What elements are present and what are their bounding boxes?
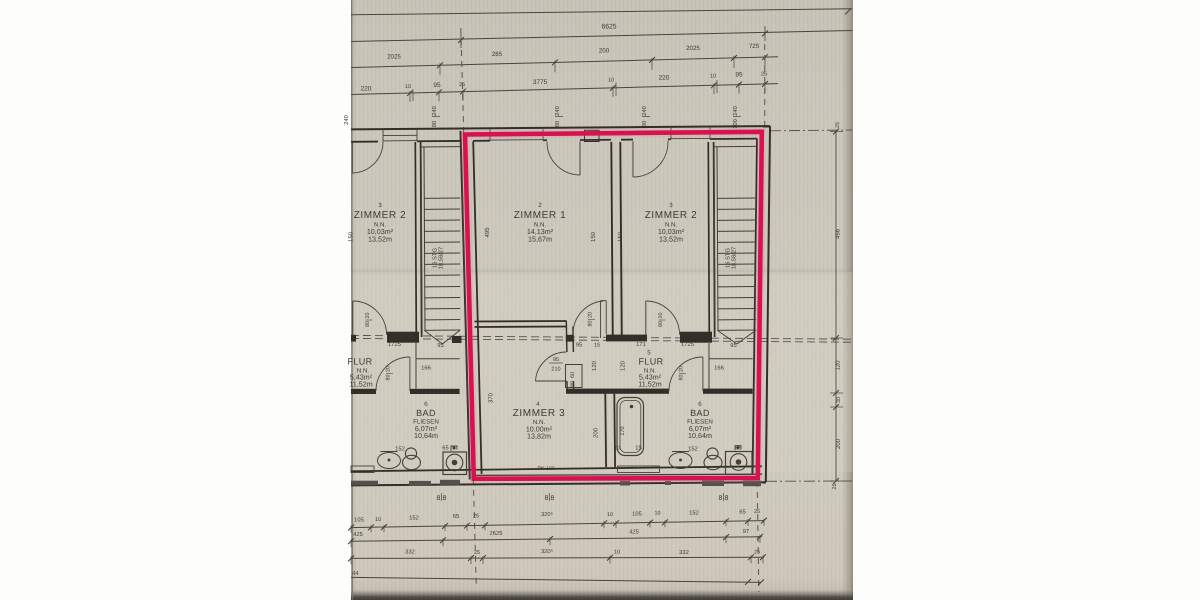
svg-text:16 STG: 16 STG [432, 248, 439, 268]
svg-text:20: 20 [588, 312, 594, 318]
svg-text:11,52m: 11,52m [349, 380, 372, 389]
svg-text:152: 152 [409, 515, 419, 522]
svg-text:10: 10 [614, 446, 620, 452]
svg-text:240: 240 [554, 106, 561, 116]
svg-text:8: 8 [725, 495, 729, 502]
svg-text:8: 8 [551, 495, 555, 502]
svg-text:80: 80 [570, 381, 576, 387]
svg-text:152: 152 [688, 446, 698, 453]
svg-text:166: 166 [714, 365, 724, 372]
svg-text:120: 120 [835, 360, 842, 371]
svg-text:8: 8 [437, 495, 441, 502]
svg-text:285: 285 [492, 51, 503, 58]
svg-text:65: 65 [735, 445, 741, 452]
svg-text:20: 20 [386, 366, 392, 372]
svg-text:11,52m: 11,52m [638, 380, 661, 389]
svg-text:95: 95 [437, 342, 443, 349]
svg-text:150: 150 [617, 231, 624, 242]
svg-text:ZIMMER 2: ZIMMER 2 [645, 210, 698, 221]
svg-text:166: 166 [421, 365, 431, 372]
svg-text:97: 97 [743, 528, 749, 535]
svg-text:95: 95 [433, 82, 441, 89]
svg-text:18,58/27: 18,58/27 [438, 247, 445, 270]
svg-text:25: 25 [754, 509, 760, 515]
svg-text:240: 240 [343, 115, 350, 125]
svg-text:10,64m: 10,64m [688, 431, 712, 440]
svg-text:20: 20 [679, 366, 685, 372]
svg-text:240: 240 [431, 106, 438, 116]
svg-text:332: 332 [679, 549, 689, 556]
svg-text:200: 200 [593, 427, 600, 438]
svg-text:152: 152 [395, 446, 405, 453]
svg-text:2625: 2625 [490, 530, 503, 537]
svg-text:425: 425 [353, 531, 363, 538]
svg-text:152: 152 [689, 509, 699, 516]
svg-text:16 STG: 16 STG [725, 248, 732, 268]
svg-text:20: 20 [365, 313, 371, 319]
svg-text:10: 10 [608, 78, 614, 84]
svg-text:15,67m: 15,67m [528, 235, 552, 244]
svg-text:3: 3 [669, 202, 673, 209]
svg-text:25: 25 [761, 71, 767, 77]
svg-text:25: 25 [474, 550, 480, 556]
svg-text:80: 80 [365, 321, 371, 327]
svg-text:370: 370 [488, 392, 495, 403]
svg-text:240: 240 [641, 106, 648, 116]
svg-text:PN 100: PN 100 [537, 466, 554, 472]
svg-text:4: 4 [536, 401, 540, 408]
svg-text:320⁵: 320⁵ [541, 511, 554, 518]
svg-text:30: 30 [836, 397, 842, 403]
svg-text:120: 120 [620, 360, 627, 371]
svg-text:80: 80 [679, 375, 685, 381]
svg-text:20: 20 [658, 313, 664, 319]
svg-text:6625: 6625 [601, 24, 616, 31]
svg-text:171: 171 [636, 342, 646, 348]
svg-text:8: 8 [443, 495, 447, 502]
svg-text:8: 8 [719, 495, 723, 502]
svg-text:120: 120 [591, 360, 598, 371]
svg-text:150: 150 [348, 231, 355, 242]
svg-text:6: 6 [424, 401, 428, 408]
svg-text:725: 725 [749, 43, 760, 50]
svg-text:44: 44 [352, 571, 359, 577]
svg-text:6: 6 [698, 401, 702, 408]
svg-text:105: 105 [354, 517, 364, 524]
svg-text:ZIMMER 1: ZIMMER 1 [514, 210, 567, 221]
svg-text:15: 15 [635, 446, 641, 452]
svg-text:150: 150 [590, 231, 597, 242]
svg-text:FLUR: FLUR [347, 357, 372, 367]
svg-text:200: 200 [835, 438, 842, 449]
svg-text:25: 25 [473, 513, 479, 519]
svg-text:10: 10 [405, 84, 411, 90]
svg-text:BAD: BAD [690, 408, 710, 418]
svg-text:65: 65 [442, 445, 448, 452]
svg-text:80: 80 [658, 321, 664, 327]
svg-text:80: 80 [431, 121, 438, 127]
svg-text:15: 15 [594, 343, 600, 349]
svg-text:210: 210 [551, 367, 560, 373]
svg-text:BAD: BAD [416, 408, 436, 418]
svg-text:3: 3 [378, 202, 382, 209]
svg-text:220: 220 [659, 75, 670, 82]
svg-text:425: 425 [629, 529, 639, 536]
svg-text:95: 95 [735, 72, 743, 79]
svg-text:10: 10 [375, 517, 381, 523]
svg-text:18,58/27: 18,58/27 [731, 247, 738, 270]
svg-text:80: 80 [588, 321, 594, 327]
svg-text:65: 65 [453, 513, 459, 520]
svg-text:80: 80 [554, 121, 561, 127]
svg-text:65: 65 [739, 509, 745, 516]
svg-text:ZIMMER 2: ZIMMER 2 [354, 210, 407, 221]
svg-text:13,52m: 13,52m [368, 235, 392, 244]
svg-text:25: 25 [754, 550, 760, 556]
svg-text:320⁵: 320⁵ [541, 548, 554, 555]
svg-text:3775: 3775 [533, 79, 548, 86]
svg-text:80: 80 [386, 375, 392, 381]
svg-text:FLUR: FLUR [638, 357, 663, 367]
svg-text:1725: 1725 [388, 341, 401, 348]
svg-text:2: 2 [538, 202, 542, 209]
svg-text:170: 170 [620, 426, 626, 435]
svg-text:10: 10 [710, 74, 716, 80]
svg-text:95: 95 [730, 342, 736, 349]
svg-text:456: 456 [835, 228, 842, 239]
svg-text:5: 5 [647, 350, 651, 357]
svg-text:220: 220 [361, 86, 372, 93]
svg-text:10: 10 [607, 512, 613, 518]
svg-text:332: 332 [405, 548, 415, 555]
svg-text:ZIMMER 3: ZIMMER 3 [513, 408, 566, 419]
svg-text:95: 95 [553, 357, 559, 363]
svg-text:10: 10 [614, 549, 620, 555]
svg-text:240: 240 [732, 106, 739, 116]
svg-text:8: 8 [545, 495, 549, 502]
svg-text:13,52m: 13,52m [659, 235, 683, 244]
svg-text:200: 200 [599, 48, 610, 55]
svg-text:1725: 1725 [681, 341, 694, 348]
svg-text:105: 105 [632, 510, 642, 517]
svg-text:25: 25 [832, 484, 838, 490]
svg-text:2025: 2025 [387, 54, 401, 61]
svg-text:13,82m: 13,82m [527, 432, 551, 441]
svg-text:10: 10 [655, 511, 661, 517]
svg-text:60: 60 [570, 372, 576, 378]
svg-text:10,64m: 10,64m [414, 431, 438, 440]
svg-text:95: 95 [576, 342, 582, 349]
svg-text:2025: 2025 [686, 45, 700, 52]
svg-text:25: 25 [835, 122, 841, 128]
svg-text:495: 495 [484, 227, 491, 238]
